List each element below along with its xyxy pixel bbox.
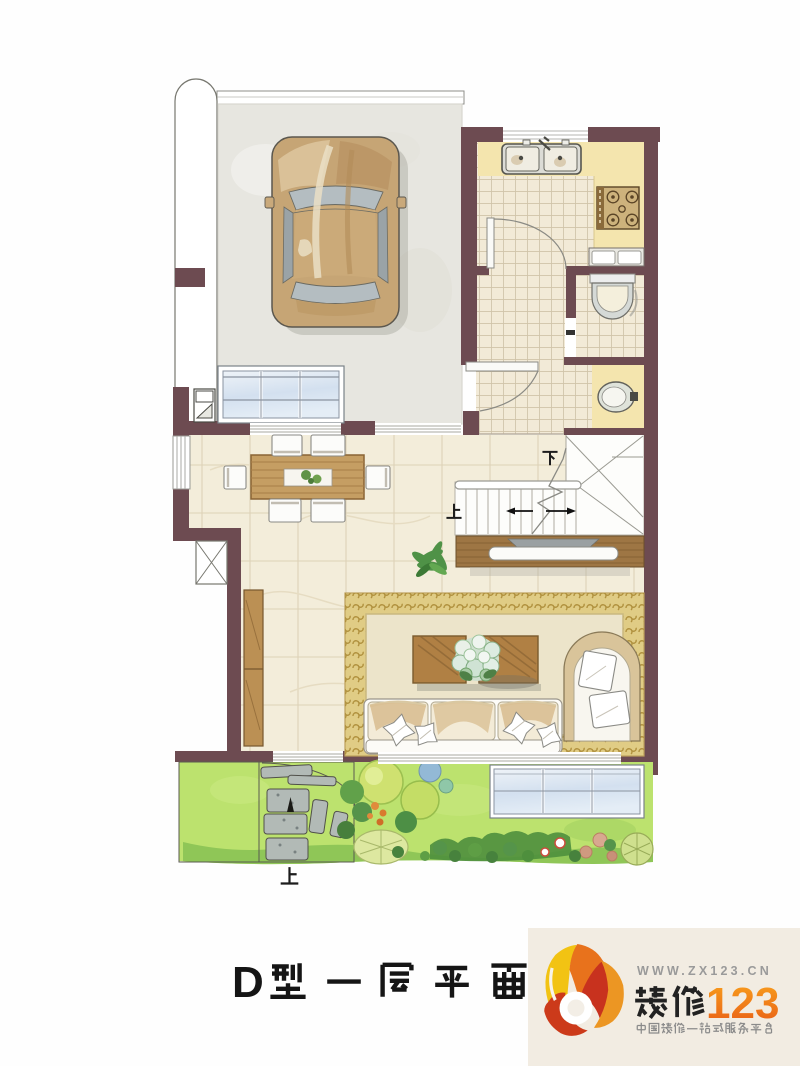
- svg-text:D: D: [232, 958, 264, 1007]
- svg-text:123: 123: [706, 979, 779, 1028]
- svg-text:WWW.ZX123.CN: WWW.ZX123.CN: [637, 964, 772, 978]
